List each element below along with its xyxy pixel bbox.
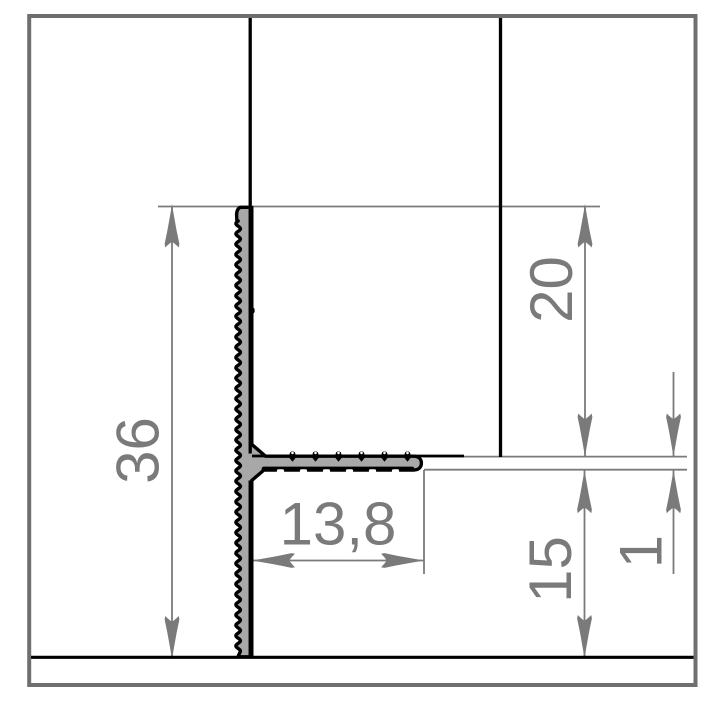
- svg-text:20: 20: [518, 256, 585, 323]
- svg-text:13,8: 13,8: [280, 491, 397, 558]
- svg-text:36: 36: [104, 417, 171, 484]
- svg-text:15: 15: [517, 536, 584, 603]
- svg-text:1: 1: [607, 535, 674, 568]
